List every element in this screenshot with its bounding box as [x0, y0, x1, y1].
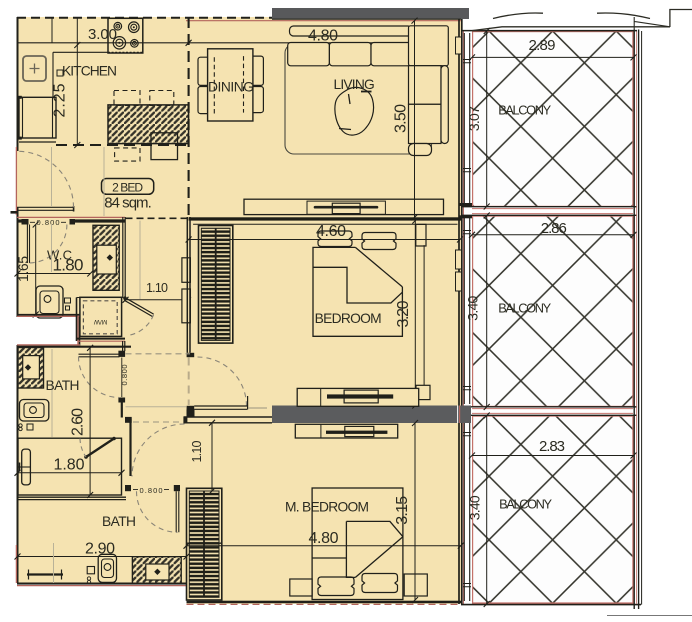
svg-text:BALCONY: BALCONY [498, 300, 551, 315]
svg-text:M. BEDROOM: M. BEDROOM [285, 499, 369, 514]
svg-text:84 sqm.: 84 sqm. [104, 195, 152, 212]
svg-text:3.50: 3.50 [393, 104, 410, 133]
svg-text:2.60: 2.60 [70, 408, 87, 436]
svg-text:3.00: 3.00 [88, 26, 117, 43]
svg-text:BALCONY: BALCONY [499, 496, 552, 511]
svg-text:BATH: BATH [46, 378, 80, 393]
svg-text:3.40: 3.40 [465, 295, 481, 320]
svg-text:0.800: 0.800 [140, 486, 163, 495]
svg-text:1.80: 1.80 [53, 255, 84, 274]
svg-text:2.89: 2.89 [529, 37, 556, 54]
svg-text:2.25: 2.25 [52, 83, 69, 117]
svg-text:3.07: 3.07 [466, 106, 482, 131]
svg-text:2.83: 2.83 [539, 438, 565, 455]
svg-text:1.65: 1.65 [15, 256, 31, 282]
svg-text:4.80: 4.80 [309, 530, 339, 547]
svg-text:0.800: 0.800 [120, 365, 129, 386]
svg-text:1.10: 1.10 [146, 281, 168, 295]
svg-text:2 BED: 2 BED [112, 180, 143, 194]
svg-text:BEDROOM: BEDROOM [315, 311, 382, 326]
svg-text:3.40: 3.40 [467, 495, 483, 520]
svg-text:1.10: 1.10 [190, 440, 204, 462]
svg-text:1.80: 1.80 [54, 457, 85, 474]
svg-text:BALCONY: BALCONY [498, 102, 551, 117]
svg-text:LIVING: LIVING [334, 77, 375, 92]
svg-text:4.80: 4.80 [308, 28, 338, 45]
svg-text:DINING: DINING [208, 80, 254, 95]
svg-text:0.800: 0.800 [37, 218, 60, 227]
svg-text:3.15: 3.15 [394, 496, 411, 525]
svg-text:M/W: M/W [93, 318, 107, 325]
svg-text:BATH: BATH [102, 514, 136, 529]
svg-text:3.20: 3.20 [395, 300, 412, 327]
svg-text:2.86: 2.86 [541, 220, 567, 237]
svg-text:KITCHEN: KITCHEN [62, 64, 117, 79]
